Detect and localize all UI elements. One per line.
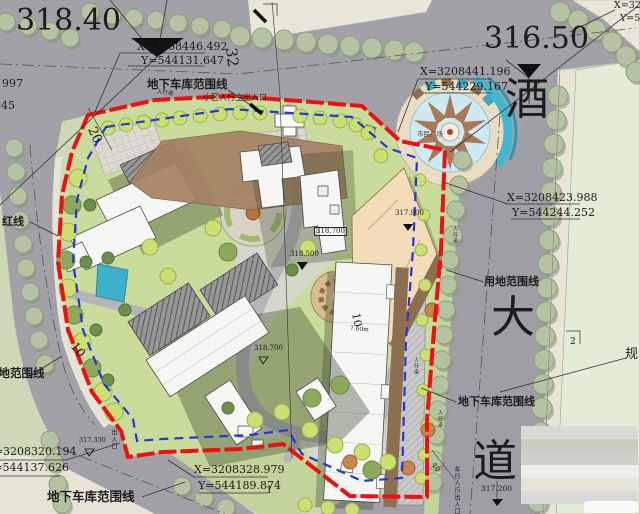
elev-317900: 317.900 [395, 210, 424, 217]
plaza-label: 市民广场 [417, 131, 443, 138]
coord-corner-y-partial: Y=5 [620, 14, 640, 24]
garage-line-label-bottom: 地下车库范围线 [47, 491, 135, 504]
coord-edge-partial-1: 997 [2, 78, 23, 89]
coord-edge-partial-2: 845 [0, 100, 15, 111]
coord-bottom-left-x: X=3208320.194 [0, 446, 77, 457]
elev-318500: 318.500 [290, 251, 319, 258]
point-number: 1 [266, 486, 272, 496]
watermark-mosaic [521, 426, 638, 504]
site-plan-canvas: 318.40 316.50 X=3208446.492 Y=544131.647… [0, 0, 640, 514]
pond [96, 264, 128, 302]
coord-top-right-x: X=3208441.196 [420, 66, 511, 77]
site-line-label-right: 用地范围线 [484, 276, 539, 287]
coord-bottom-center-x: X=3208328.979 [194, 464, 285, 475]
bottom-exit-label: 出入口 [110, 429, 116, 450]
red-line-label: 红线 [2, 216, 24, 227]
coord-top-left-x: X=3208446.492 [137, 41, 228, 52]
coord-top-left-y: Y=544131.647 [141, 55, 224, 66]
sidewalk-label-right: 人行道 [452, 226, 457, 244]
coord-bottom-left-y: Y=544137.626 [0, 462, 69, 473]
elev-317330: 317.330 [79, 437, 106, 444]
elev-317200: 317.200 [481, 485, 512, 493]
dim-760m: 7.60m [350, 326, 369, 333]
spot-elevation-left: 318.40 [16, 6, 121, 36]
dim-road-width-32: 32 [223, 47, 240, 68]
sidewalk-label-mid: 人行道 [413, 357, 418, 375]
elev-318700: 318.700 [254, 345, 283, 352]
street-name-char-1: 酒 [505, 78, 549, 122]
street-name-char-2: 大 [491, 296, 535, 340]
spot-elevation-right: 316.50 [484, 24, 589, 54]
site-line-label-left: 用地范围线 [0, 368, 45, 380]
adjacent-road-label-partial: 规 [625, 348, 638, 361]
coord-top-right-y: Y=544229.167 [425, 81, 508, 92]
coord-corner-x-partial: X=32 [614, 1, 640, 11]
vehicle-pedestrian-entrance-label: 车行人行出入口 [453, 466, 459, 514]
sidewalk-label-lower: 人行道 [437, 410, 442, 428]
elev-318700-boxed: 318.700 [314, 227, 347, 236]
main-pedestrian-entrance-label: 小区人行主出入口 [203, 94, 267, 102]
garage-line-label-right: 地下车库范围线 [458, 396, 535, 407]
street-name-char-3: 道 [473, 440, 517, 484]
coord-right-x: X=3208423.988 [507, 192, 598, 203]
coord-right-y: Y=544244.252 [512, 207, 595, 218]
dim-2: 2 [570, 338, 576, 347]
watermark-pill [584, 501, 638, 513]
